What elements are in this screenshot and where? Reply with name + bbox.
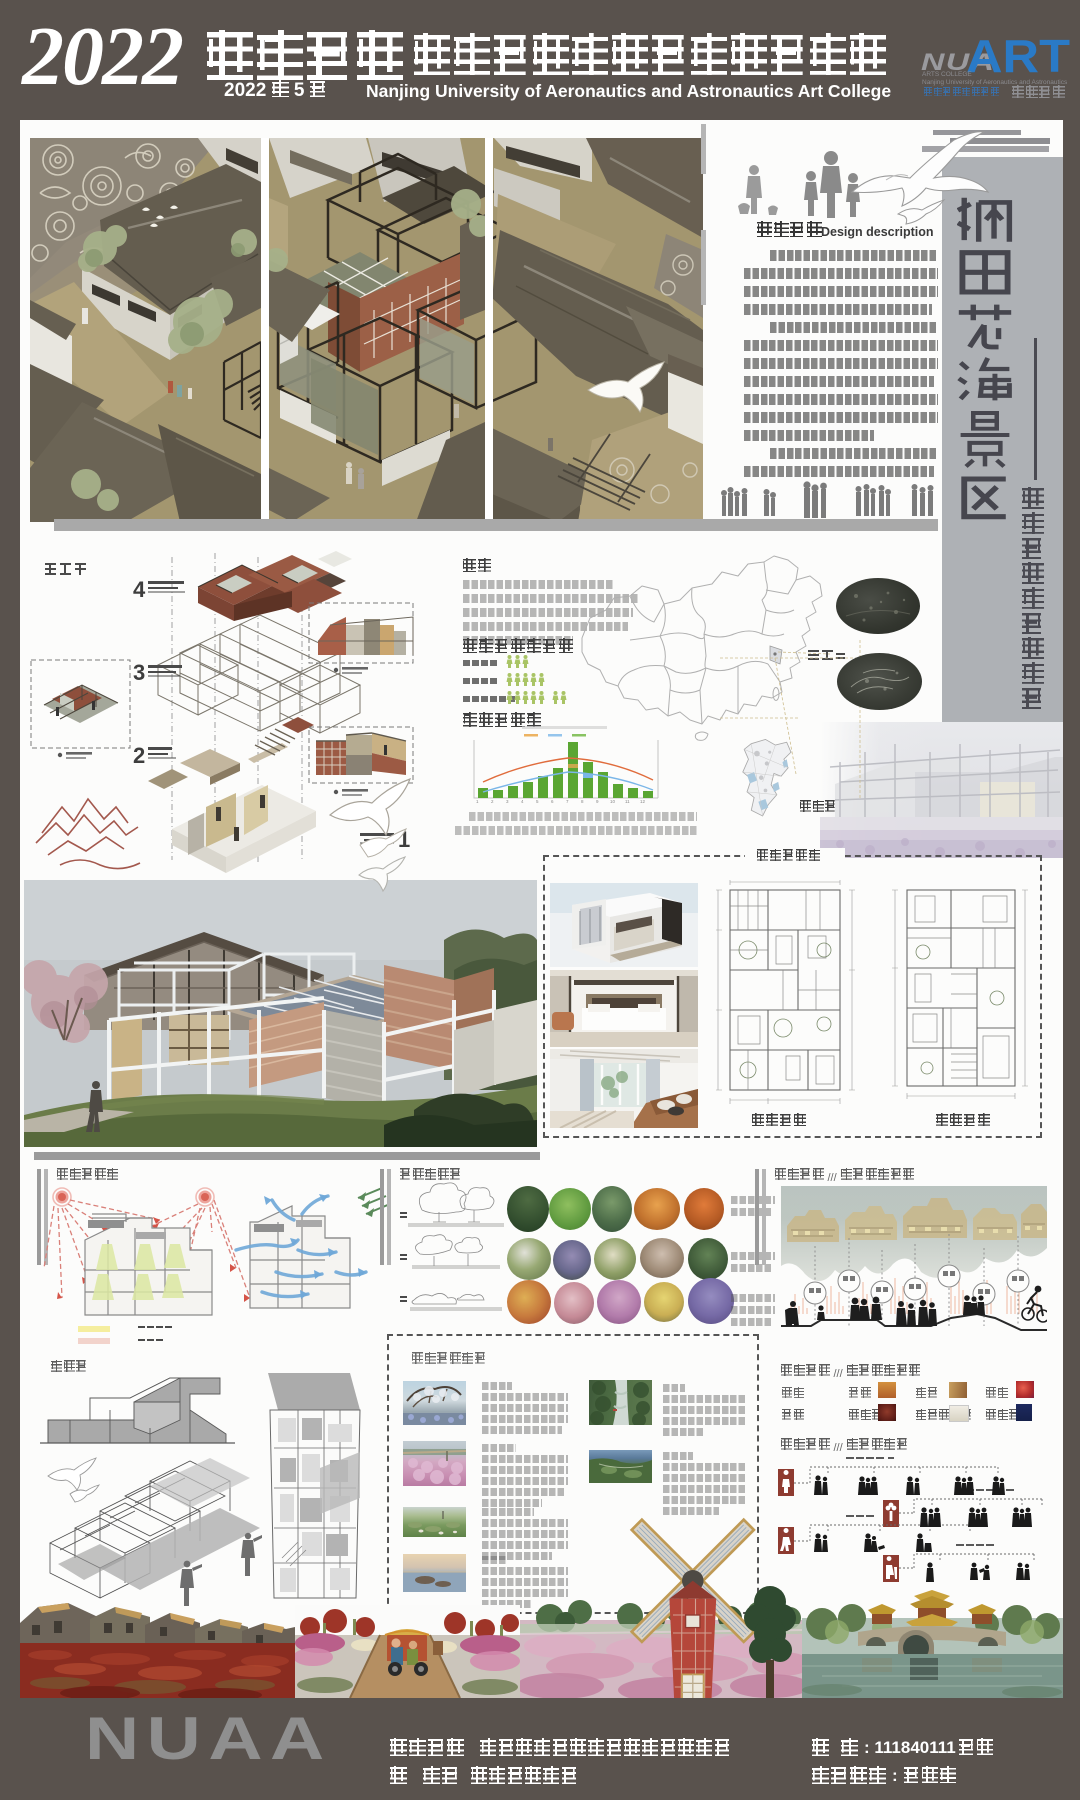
svg-text:4: 4	[521, 799, 524, 804]
svg-text:11: 11	[625, 799, 630, 804]
svg-text:3: 3	[133, 660, 145, 685]
svg-text:4: 4	[133, 577, 146, 602]
svg-text:9: 9	[596, 799, 599, 804]
svg-text:7: 7	[566, 799, 569, 804]
svg-text:2: 2	[133, 743, 145, 768]
svg-text:8: 8	[581, 799, 584, 804]
svg-text:3: 3	[506, 799, 509, 804]
svg-text:12: 12	[640, 799, 646, 804]
svg-text:2: 2	[491, 799, 494, 804]
svg-text:6: 6	[551, 799, 554, 804]
svg-text:10: 10	[610, 799, 616, 804]
svg-text:5: 5	[536, 799, 539, 804]
svg-text:1: 1	[476, 799, 479, 804]
